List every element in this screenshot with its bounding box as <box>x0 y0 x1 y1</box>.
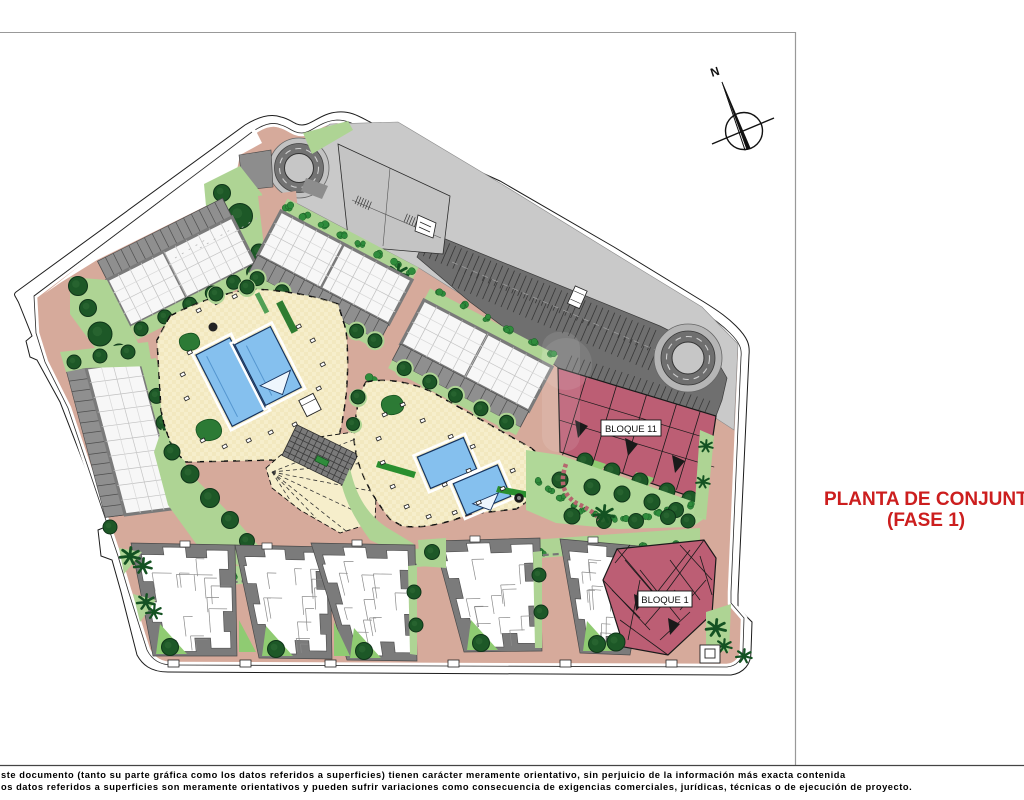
svg-text:BLOQUE 1: BLOQUE 1 <box>641 595 689 606</box>
svg-text:N: N <box>709 64 722 80</box>
svg-text:BLOQUE 11: BLOQUE 11 <box>605 424 657 435</box>
